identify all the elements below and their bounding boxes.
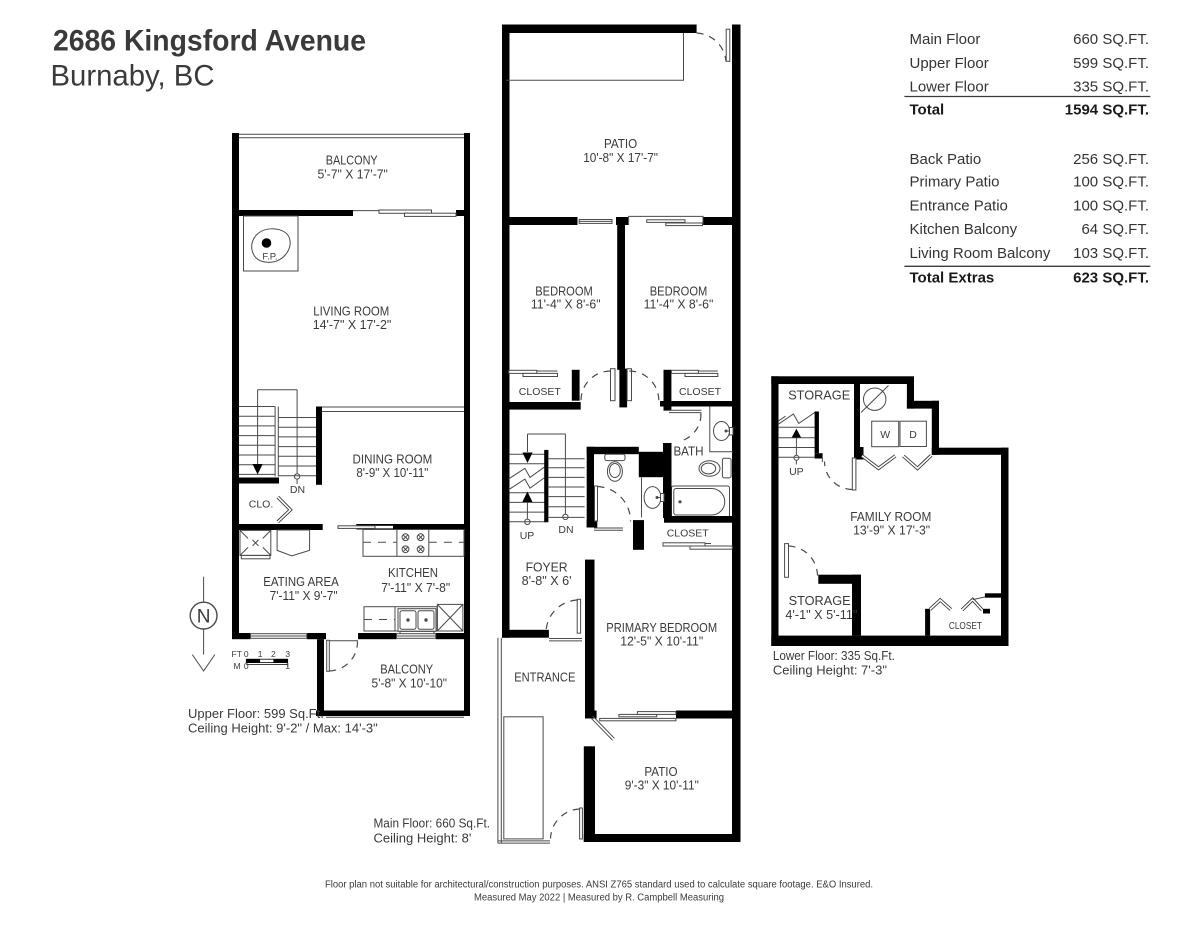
svg-text:1: 1 [285, 661, 290, 671]
svg-text:623 SQ.FT.: 623 SQ.FT. [1073, 270, 1149, 287]
svg-text:Lower Floor: 335 Sq.Ft.: Lower Floor: 335 Sq.Ft. [773, 648, 895, 663]
svg-text:ENTRANCE: ENTRANCE [514, 670, 575, 685]
svg-text:BALCONY: BALCONY [326, 152, 378, 167]
svg-text:Burnaby, BC: Burnaby, BC [51, 60, 215, 93]
svg-text:13'-9" X 17'-3": 13'-9" X 17'-3" [853, 523, 930, 538]
svg-text:Back Patio: Back Patio [910, 151, 982, 168]
svg-text:Primary Patio: Primary Patio [910, 174, 1000, 191]
svg-text:0: 0 [244, 649, 249, 659]
svg-text:0: 0 [244, 661, 249, 671]
svg-text:F.P.: F.P. [262, 252, 277, 263]
svg-text:7'-11" X 9'-7": 7'-11" X 9'-7" [270, 588, 338, 603]
svg-text:100 SQ.FT.: 100 SQ.FT. [1073, 198, 1149, 215]
svg-text:103 SQ.FT.: 103 SQ.FT. [1073, 245, 1149, 262]
svg-text:DN: DN [290, 484, 305, 496]
svg-text:Floor plan not suitable for ar: Floor plan not suitable for architectura… [325, 880, 873, 891]
svg-text:660 SQ.FT.: 660 SQ.FT. [1073, 31, 1149, 48]
svg-text:Kitchen Balcony: Kitchen Balcony [910, 221, 1018, 238]
svg-text:DN: DN [558, 524, 573, 536]
svg-text:5'-7" X 17'-7": 5'-7" X 17'-7" [318, 167, 389, 182]
svg-text:100 SQ.FT.: 100 SQ.FT. [1073, 174, 1149, 191]
svg-text:CLOSET: CLOSET [949, 620, 982, 632]
svg-text:UP: UP [520, 530, 535, 542]
svg-text:599 SQ.FT.: 599 SQ.FT. [1073, 55, 1149, 72]
svg-text:64 SQ.FT.: 64 SQ.FT. [1081, 221, 1149, 238]
svg-text:STORAGE: STORAGE [789, 593, 851, 608]
svg-text:1594 SQ.FT.: 1594 SQ.FT. [1065, 102, 1149, 119]
svg-text:M: M [234, 661, 241, 671]
svg-text:11'-4" X 8'-6": 11'-4" X 8'-6" [531, 297, 601, 312]
svg-text:Total Extras: Total Extras [910, 270, 995, 287]
svg-text:Upper Floor: 599 Sq.Ft.: Upper Floor: 599 Sq.Ft. [188, 706, 324, 721]
svg-text:7'-11" X 7'-8": 7'-11" X 7'-8" [381, 580, 450, 595]
svg-text:Ceiling Height: 7'-3": Ceiling Height: 7'-3" [773, 663, 887, 678]
svg-text:Upper Floor: Upper Floor [910, 55, 989, 72]
svg-text:CLOSET: CLOSET [679, 386, 722, 398]
svg-text:Entrance Patio: Entrance Patio [910, 198, 1008, 215]
svg-text:Living Room Balcony: Living Room Balcony [910, 245, 1051, 262]
svg-text:9'-3" X 10'-11": 9'-3" X 10'-11" [625, 778, 699, 793]
svg-text:PATIO: PATIO [604, 136, 637, 151]
svg-text:3: 3 [285, 649, 290, 659]
svg-text:BATH: BATH [673, 444, 703, 459]
svg-text:Ceiling Height: 8': Ceiling Height: 8' [374, 830, 472, 845]
svg-text:12'-5" X 10'-11": 12'-5" X 10'-11" [620, 634, 703, 649]
svg-text:5'-8" X 10'-10": 5'-8" X 10'-10" [372, 676, 448, 691]
svg-text:EATING AREA: EATING AREA [263, 574, 339, 589]
svg-text:10'-8" X 17'-7": 10'-8" X 17'-7" [583, 150, 658, 165]
svg-text:Lower Floor: Lower Floor [910, 78, 989, 95]
svg-text:CLOSET: CLOSET [667, 528, 710, 540]
svg-text:N: N [197, 607, 211, 628]
svg-text:CLOSET: CLOSET [519, 386, 562, 398]
svg-text:Main Floor: 660 Sq.Ft.: Main Floor: 660 Sq.Ft. [374, 816, 491, 831]
svg-text:2686 Kingsford Avenue: 2686 Kingsford Avenue [53, 25, 366, 58]
svg-text:14'-7" X 17'-2": 14'-7" X 17'-2" [313, 317, 392, 332]
svg-text:8'-9" X 10'-11": 8'-9" X 10'-11" [356, 465, 428, 480]
svg-text:2: 2 [271, 649, 276, 659]
svg-text:BALCONY: BALCONY [380, 661, 433, 676]
svg-text:335 SQ.FT.: 335 SQ.FT. [1073, 78, 1149, 95]
svg-text:4'-1" X 5'-11": 4'-1" X 5'-11" [785, 607, 857, 622]
svg-text:CLO.: CLO. [249, 499, 274, 511]
svg-text:Main Floor: Main Floor [910, 31, 981, 48]
svg-text:D: D [909, 429, 917, 441]
svg-text:1: 1 [258, 649, 263, 659]
svg-text:UP: UP [789, 466, 804, 478]
svg-text:256 SQ.FT.: 256 SQ.FT. [1073, 151, 1149, 168]
svg-text:11'-4" X 8'-6": 11'-4" X 8'-6" [644, 297, 714, 312]
svg-text:Measured May 2022 | Measured b: Measured May 2022 | Measured by R. Campb… [474, 893, 724, 904]
svg-text:FT: FT [232, 649, 242, 659]
svg-text:Total: Total [910, 102, 945, 119]
svg-text:KITCHEN: KITCHEN [388, 565, 438, 580]
svg-text:W: W [880, 429, 890, 441]
svg-text:Ceiling Height: 9'-2" / Max: 1: Ceiling Height: 9'-2" / Max: 14'-3" [188, 721, 378, 736]
svg-text:STORAGE: STORAGE [788, 388, 850, 403]
svg-text:8'-8" X 6': 8'-8" X 6' [522, 573, 572, 588]
